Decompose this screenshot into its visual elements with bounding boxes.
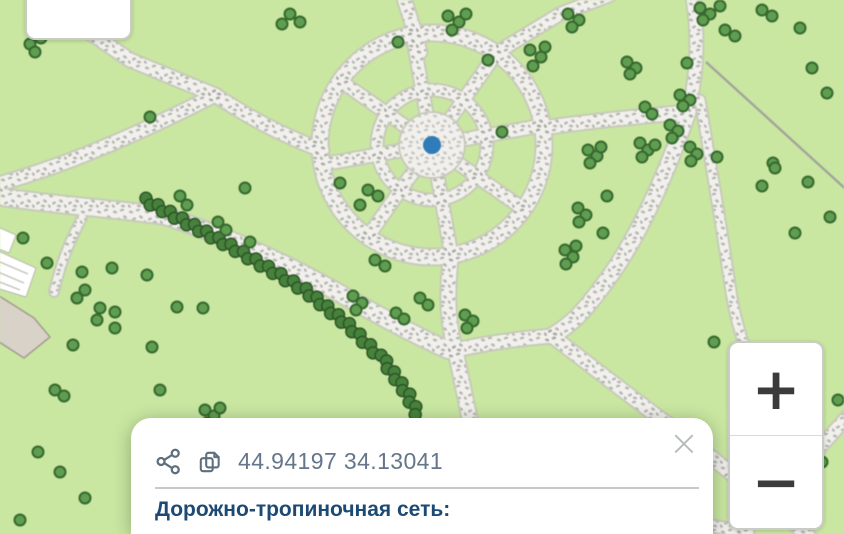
copy-button[interactable] [197,449,223,475]
share-button[interactable] [155,448,182,475]
zoom-control: + − [728,341,824,530]
map-control-button[interactable] [25,0,132,40]
map-viewport: + − × 44.9 [0,0,844,534]
fountain-marker [423,136,441,154]
close-icon: × [669,423,699,464]
popup-header-row: 44.94197 34.13041 [131,418,713,475]
popup-title: Дорожно-тропиночная сеть: [131,489,713,522]
coordinates-popup: × 44.94197 34.13041 [131,418,713,534]
coordinates-text: 44.94197 34.13041 [238,448,443,475]
zoom-out-button[interactable]: − [730,435,822,528]
close-button[interactable]: × [667,424,701,464]
zoom-in-button[interactable]: + [730,343,822,435]
central-plaza [398,111,466,179]
copy-icon [197,449,223,475]
share-icon [155,448,182,475]
